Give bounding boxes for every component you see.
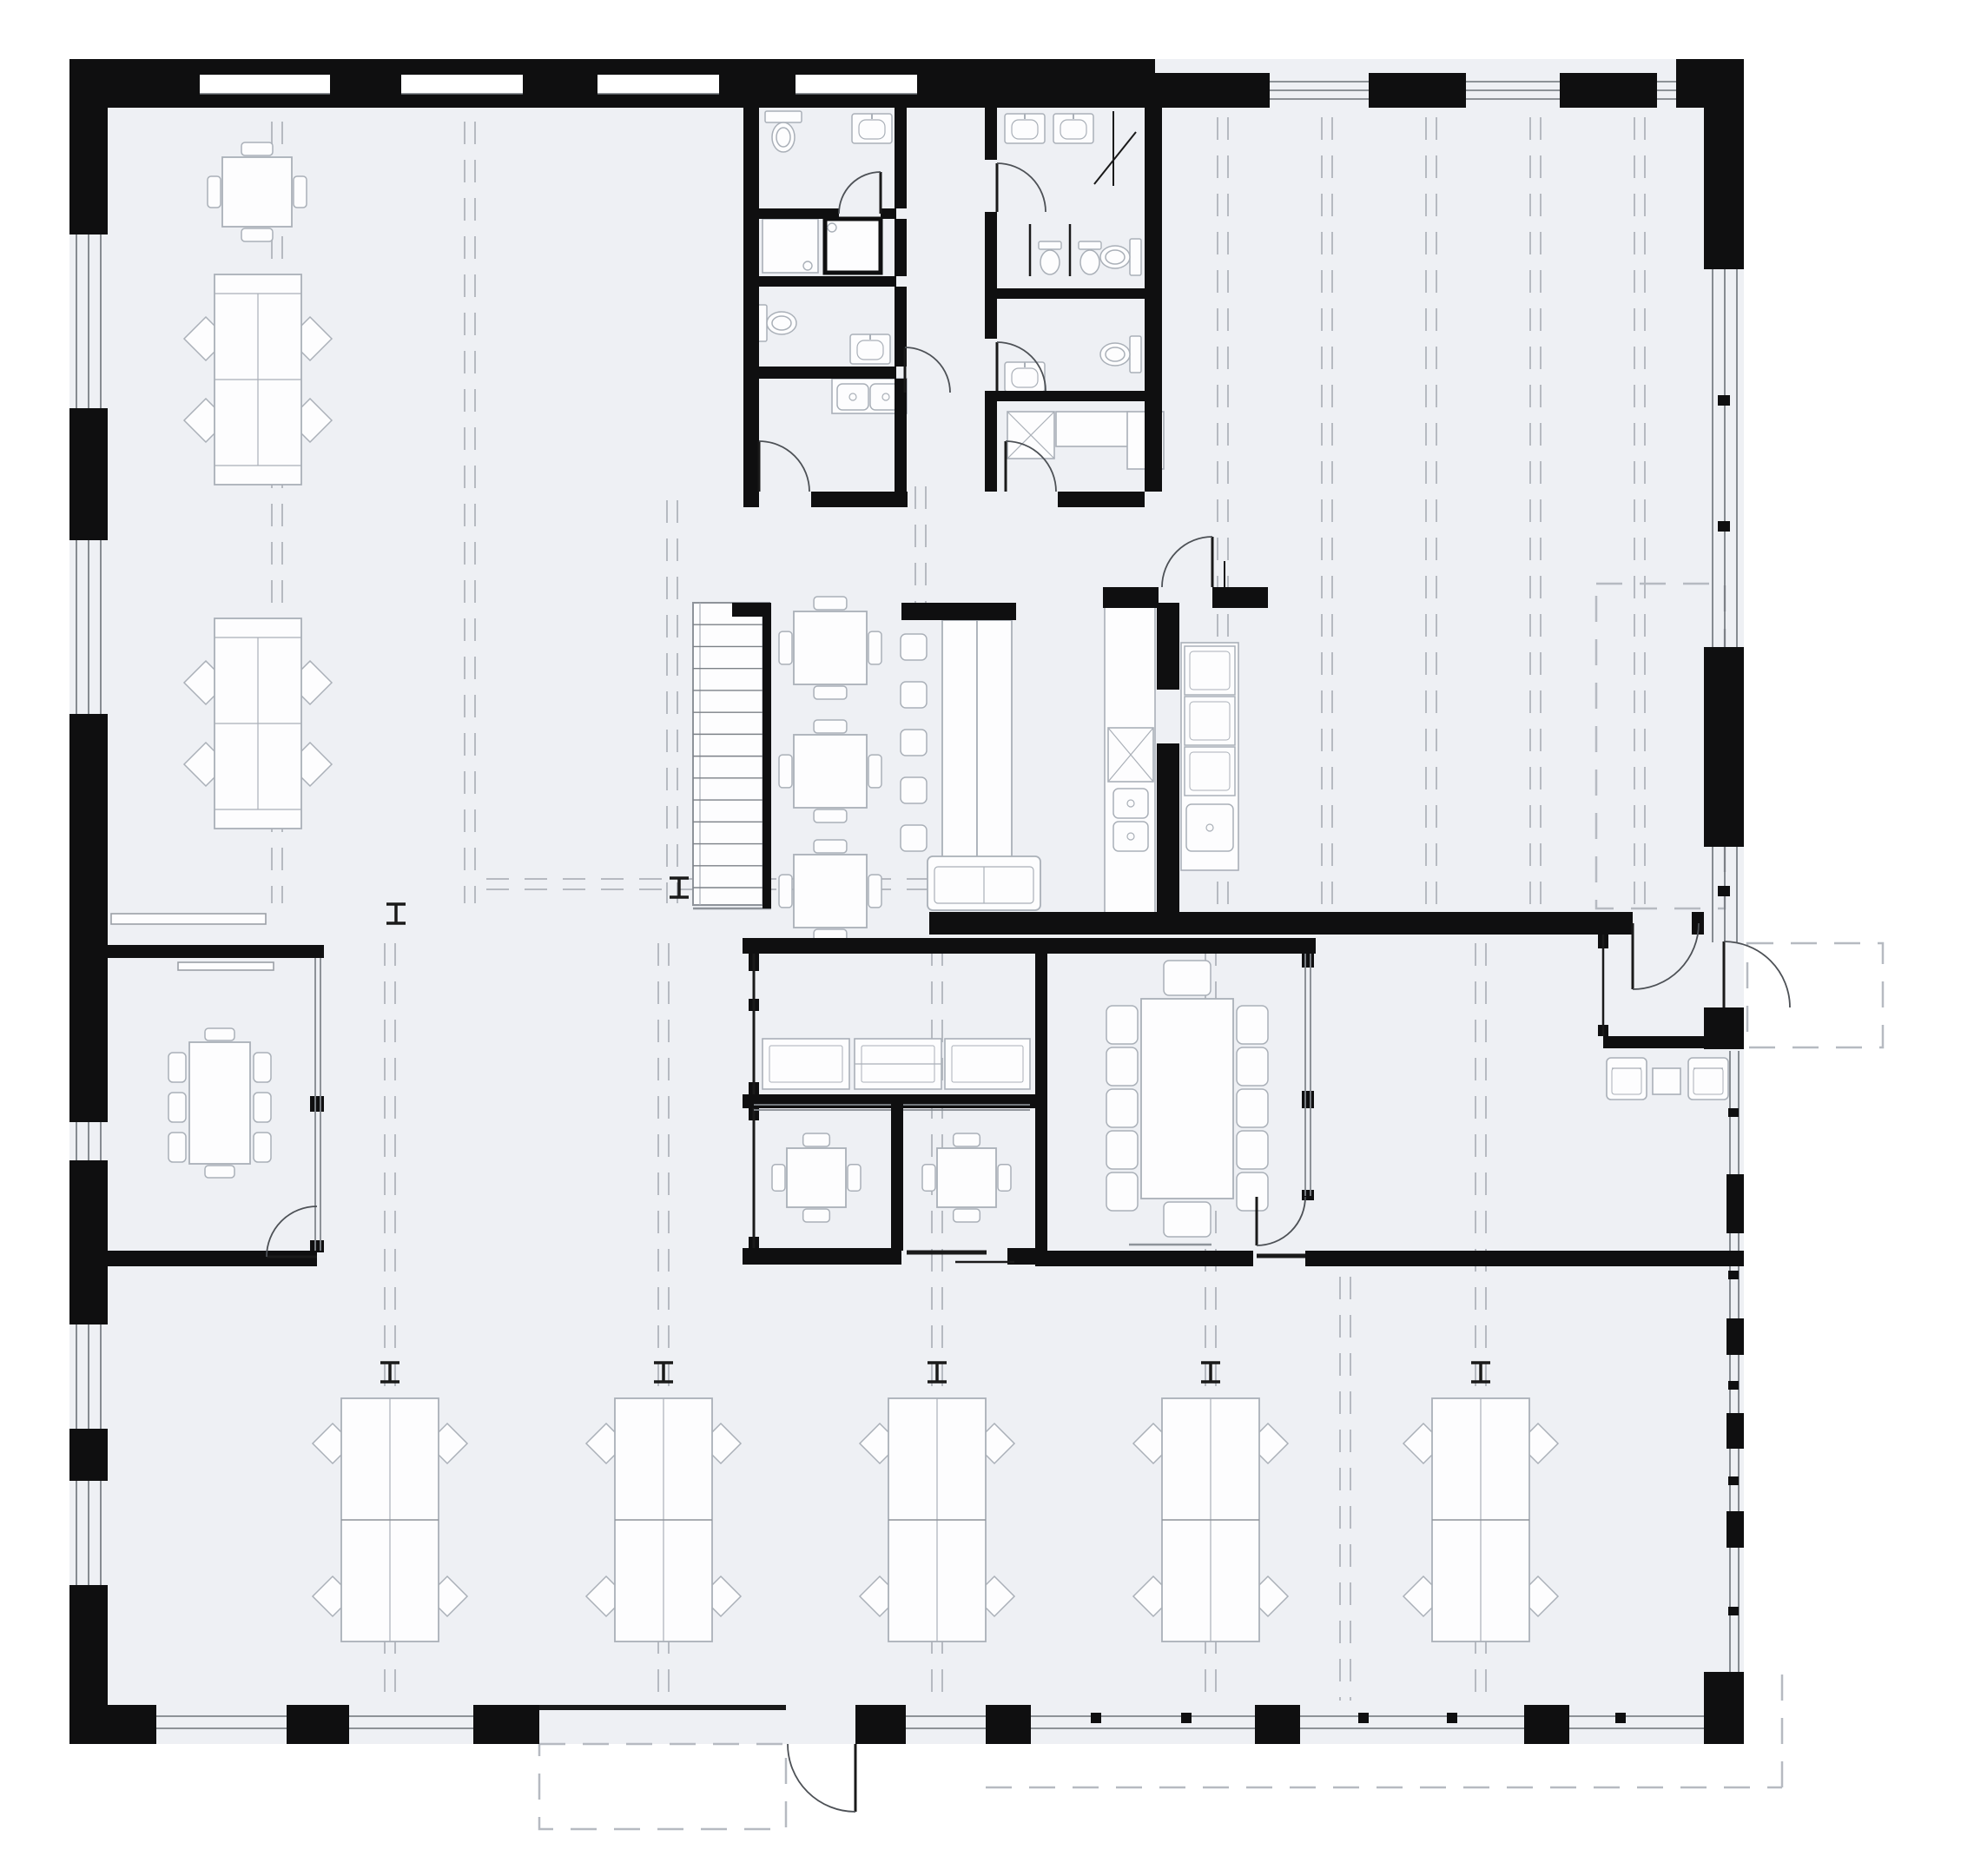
mullion-tick [1718,395,1730,406]
wall-segment [473,1705,539,1744]
chair [254,1053,271,1082]
chair [241,142,273,155]
chair [1237,1131,1268,1169]
chair [168,1093,186,1122]
wall-segment [929,912,1633,935]
toilet [1100,246,1130,268]
wall-segment [69,1705,156,1744]
window-slot [200,75,330,94]
wall-segment [732,603,771,617]
toilet [1130,239,1141,275]
appliance [1190,752,1230,790]
chair [779,631,792,664]
wall-segment [811,492,908,507]
chair [1164,961,1211,995]
door-swing [788,1744,855,1812]
wall-segment [1603,1036,1744,1048]
urinal [1080,250,1099,274]
mullion-tick [1718,886,1730,896]
urinal [1040,250,1060,274]
toilet [765,111,802,122]
wall-segment [759,208,839,219]
chair [779,875,792,908]
wall-segment [69,1429,108,1481]
wall-segment [985,108,997,160]
meeting-table [189,1042,250,1164]
wall-segment [1039,1251,1253,1266]
chair [868,631,881,664]
wall-segment [895,219,907,276]
wall-segment [881,208,896,219]
kitchen-sink [1113,822,1148,851]
wall-segment [743,1248,901,1265]
mullion-tick [1181,1713,1192,1723]
mullion-tick [1728,1271,1739,1279]
storage-cabinet [952,1046,1023,1082]
toilet [1130,336,1141,373]
bar-counter [977,620,1012,869]
wall-segment [986,1705,1031,1744]
shower [763,219,818,273]
chair [803,1209,830,1222]
chair [208,176,221,208]
wall-segment [895,379,907,492]
wall-segment [1704,94,1744,269]
sideboard [178,962,274,970]
chair [803,1133,830,1146]
wall-segment [1103,587,1159,608]
chair [205,1166,234,1178]
mullion-tick [1091,1713,1101,1723]
wall-segment [310,1096,324,1112]
wall-segment [69,408,108,540]
wall-segment [901,603,1016,620]
wall-segment [1704,1705,1744,1744]
wall-segment [985,391,997,492]
stair [693,603,769,905]
toilet [1100,343,1130,366]
bar-stool [901,777,927,803]
floor-plan-canvas [0,0,1974,1876]
appliance [1190,702,1230,740]
chair [868,755,881,788]
sink [859,120,885,139]
window-slot [597,75,719,94]
bar-stool [901,682,927,708]
chair [998,1165,1011,1192]
wall-segment [763,603,771,908]
chair [814,809,847,822]
wall-segment [1302,1190,1314,1200]
chair [1164,1202,1211,1237]
wall-segment [310,1240,324,1252]
chair [848,1165,861,1192]
table-square [222,157,292,227]
wall-segment [1704,647,1744,847]
wall-segment [743,108,759,492]
chair [1237,1006,1268,1044]
kitchen-sink [1113,789,1148,818]
chair [254,1093,271,1122]
mullion-tick [1358,1713,1369,1723]
wall-segment [108,1251,317,1266]
storage-cabinet [769,1046,842,1082]
wall-segment [743,938,1316,954]
chair [814,597,847,610]
wall-segment [1726,1413,1744,1449]
wall-segment [69,59,108,234]
mullion-tick [1615,1713,1626,1723]
wall-segment [1726,1174,1744,1233]
wall-segment [1369,73,1466,108]
chair [868,875,881,908]
toilet [767,312,796,334]
wall-segment [997,288,1145,299]
wall-segment [1524,1705,1569,1744]
wall-segment [1305,1251,1744,1266]
sink [1060,120,1086,139]
mullion-tick [1728,1381,1739,1390]
chair [168,1053,186,1082]
wall-segment [743,492,759,507]
chair [954,1133,980,1146]
wall-segment [891,1108,903,1251]
mullion-tick [1728,1476,1739,1485]
wall-segment [1145,108,1162,492]
mullion-tick [1728,1108,1739,1117]
chair [1106,1172,1138,1211]
chair [1106,1047,1138,1086]
armchair [1612,1068,1641,1094]
sideboard [111,914,266,924]
chair [814,720,847,733]
wall-segment [985,212,997,339]
shower [825,219,881,273]
toilet [772,122,795,152]
kitchen-sink [837,384,868,410]
chair [1237,1172,1268,1211]
chair [954,1209,980,1222]
floor-plan [0,0,1974,1876]
chair [168,1133,186,1162]
kitchen-sink [1186,804,1233,851]
chair [241,228,273,241]
wall-segment [997,391,1145,401]
wall-segment [1212,587,1268,608]
chair [922,1165,935,1192]
chair [1237,1089,1268,1127]
wall-segment [1255,1705,1300,1744]
wall-segment [1560,73,1657,108]
side-table [1653,1068,1680,1094]
table-square [794,855,867,928]
chair [254,1133,271,1162]
appliance [1190,651,1230,690]
wall-segment [1155,73,1270,108]
conference-table [1141,999,1233,1199]
wall-segment [895,108,907,208]
wall-segment [69,1160,108,1324]
wall-segment [855,1705,906,1744]
chair [814,686,847,699]
window-slot [401,75,523,94]
mullion-tick [1718,521,1730,532]
kitchen-counter [1056,412,1129,446]
bar-stool [901,730,927,756]
chair [294,176,307,208]
armchair [1693,1068,1723,1094]
wall-segment [1058,492,1145,507]
table-square [794,611,867,684]
chair [1106,1131,1138,1169]
chair [205,1028,234,1040]
porch-dashed-outline [539,1744,786,1829]
wall-segment [1302,954,1314,968]
chair [779,755,792,788]
wall-segment [1157,603,1179,690]
wall-segment [743,1094,1046,1108]
mullion-tick [1447,1713,1457,1723]
chair [1106,1006,1138,1044]
sink [1012,120,1038,139]
chair [814,840,847,853]
table-square [787,1148,846,1207]
chair [1106,1089,1138,1127]
urinal [1079,241,1101,249]
wall-segment [287,1705,349,1744]
wall-segment [1302,1091,1314,1108]
bar-stool [901,825,927,851]
wall-segment [108,945,324,958]
wall-segment [1726,1511,1744,1548]
bar-counter [942,620,977,869]
wall-segment [69,714,108,1122]
bar-stool [901,634,927,660]
wall-segment [759,276,896,287]
sink [1012,368,1038,387]
table-square [794,735,867,808]
urinal [1039,241,1061,249]
wall-segment [759,367,896,379]
wall-segment [1157,743,1179,914]
chair [1237,1047,1268,1086]
chair [772,1165,785,1192]
table-square [937,1148,996,1207]
wall-segment [1726,1318,1744,1355]
window-slot [796,75,917,94]
sink [857,340,883,360]
mullion-tick [1728,1607,1739,1615]
